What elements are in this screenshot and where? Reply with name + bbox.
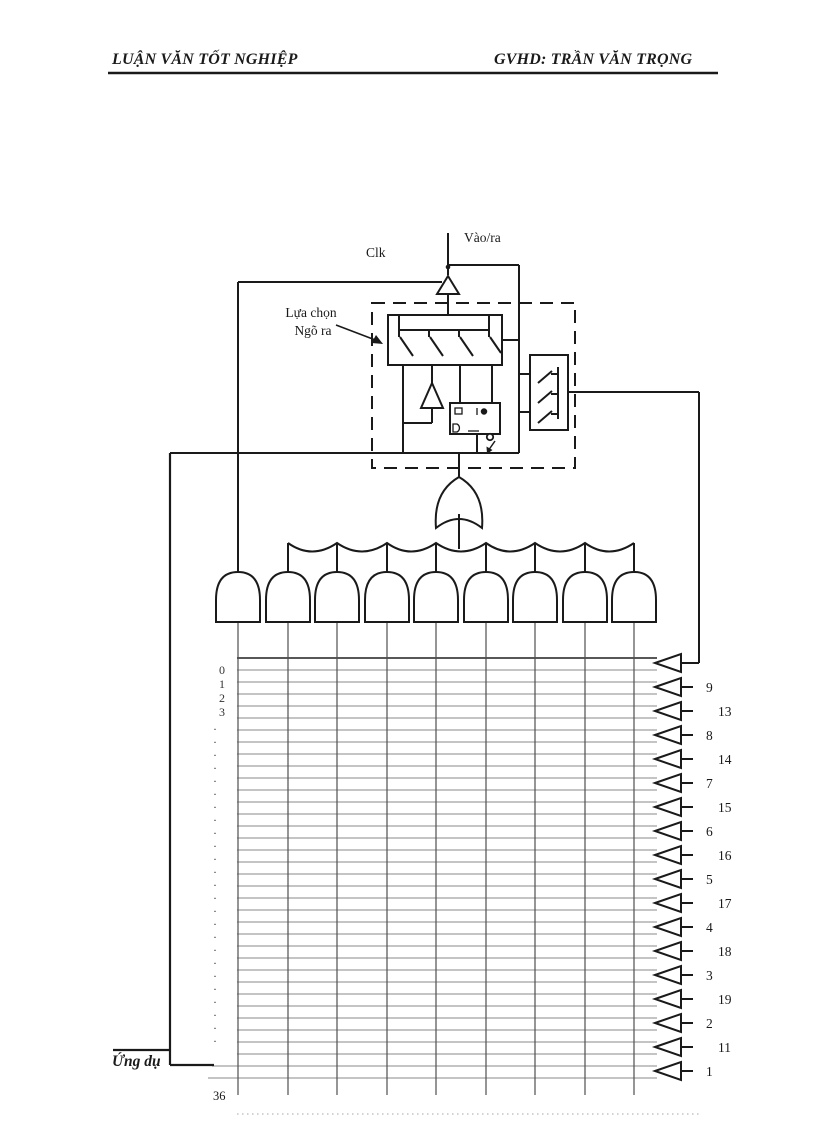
- led-triangle-icon: [655, 774, 681, 792]
- led-triangle-icon: [655, 870, 681, 888]
- diagram-texts: LUẬN VĂN TỐT NGHIỆP GVHD: TRẦN VĂN TRỌNG…: [111, 48, 692, 1103]
- pin-label: 5: [706, 872, 713, 887]
- and-gates: [216, 572, 656, 622]
- long-feedback-wire: [170, 453, 214, 1065]
- output-bundle-curve: [288, 543, 634, 552]
- led-triangle-icon: [655, 1062, 681, 1080]
- pin-label: 2: [706, 1016, 713, 1031]
- io-label: Vào/ra: [464, 230, 501, 245]
- flipflop-bubble: [487, 434, 493, 440]
- row-dot: .: [214, 1031, 217, 1045]
- led-triangle-icon: [655, 990, 681, 1008]
- row-dot: .: [214, 940, 217, 954]
- row-dot: .: [214, 849, 217, 863]
- pin-label: 9: [706, 680, 713, 695]
- row-dot: .: [214, 732, 217, 746]
- row-dot: .: [214, 836, 217, 850]
- row-dot: .: [214, 875, 217, 889]
- led-triangle-icon: [655, 942, 681, 960]
- thesis-header-left: LUẬN VĂN TỐT NGHIỆP: [111, 49, 298, 68]
- led-triangle-icon: [655, 654, 681, 672]
- and-gate-icon: [216, 572, 260, 622]
- pin-label: 15: [718, 800, 732, 815]
- row-dot: .: [214, 966, 217, 980]
- led-triangle-icon: [655, 1038, 681, 1056]
- and-gate-icon: [563, 572, 607, 622]
- pin-label: 4: [706, 920, 713, 935]
- junction-dot: [446, 265, 451, 270]
- output-select-label-line1: Lựa chọn: [285, 305, 336, 320]
- led-triangle-icon: [655, 750, 681, 768]
- led-triangle-icon: [655, 918, 681, 936]
- gate-output-stubs: [288, 543, 634, 572]
- switch-bank-box: [388, 315, 502, 365]
- pin-label: 14: [718, 752, 732, 767]
- pin-label: 7: [706, 776, 713, 791]
- row-dot: .: [214, 927, 217, 941]
- pin-label: 8: [706, 728, 713, 743]
- row-label: 1: [219, 677, 225, 691]
- demux-left-stubs: [519, 374, 530, 412]
- document-page: 0123......................... 9138147156…: [0, 0, 816, 1123]
- row-dot: .: [214, 914, 217, 928]
- page-number: 36: [213, 1089, 226, 1103]
- circuit-schematic: 0123......................... 9138147156…: [0, 0, 816, 1123]
- led-triangle-icon: [655, 822, 681, 840]
- pin-label: 19: [718, 992, 732, 1007]
- inner-buffer-icon: [421, 383, 443, 408]
- row-dot: .: [214, 862, 217, 876]
- row-label: 2: [219, 691, 225, 705]
- led-output-triangles: [655, 654, 693, 1080]
- pin-label: 3: [706, 968, 713, 983]
- matrix-rows: [208, 658, 657, 1078]
- pin-label: 1: [706, 1064, 713, 1079]
- row-label: 0: [219, 663, 225, 677]
- and-gate-icon: [464, 572, 508, 622]
- footer-text: Ứng dụ: [112, 1053, 161, 1070]
- pin-label: 16: [718, 848, 732, 863]
- and-gate-icon: [414, 572, 458, 622]
- row-dot: .: [214, 823, 217, 837]
- led-triangle-icon: [655, 702, 681, 720]
- and-gate-icon: [365, 572, 409, 622]
- and-gate-icon: [266, 572, 310, 622]
- row-dot: .: [214, 979, 217, 993]
- select-left-loop: [403, 408, 432, 423]
- led-triangle-icon: [655, 966, 681, 984]
- row-dot: .: [214, 758, 217, 772]
- clk-label: Clk: [366, 245, 386, 260]
- matrix-row-labels: 0123.........................: [214, 663, 226, 1045]
- pin-label: 18: [718, 944, 732, 959]
- row-dot: .: [214, 901, 217, 915]
- thesis-header-right: GVHD: TRẦN VĂN TRỌNG: [494, 48, 692, 68]
- row-dot: .: [214, 888, 217, 902]
- row-dot: .: [214, 1018, 217, 1032]
- pin-label: 13: [718, 704, 732, 719]
- output-select-label-line2: Ngõ ra: [294, 323, 331, 338]
- led-triangle-icon: [655, 894, 681, 912]
- led-triangle-icon: [655, 726, 681, 744]
- matrix-columns: [238, 622, 634, 1095]
- led-pin-labels: 9138147156165174183192111: [706, 680, 732, 1079]
- pin-label: 17: [718, 896, 732, 911]
- row-dot: .: [214, 784, 217, 798]
- led-triangle-icon: [655, 1014, 681, 1032]
- row-dot: .: [214, 953, 217, 967]
- led-triangle-icon: [655, 846, 681, 864]
- row-dot: .: [214, 719, 217, 733]
- row-dot: .: [214, 797, 217, 811]
- pin-label: 6: [706, 824, 713, 839]
- row-dot: .: [214, 992, 217, 1006]
- led-triangle-icon: [655, 678, 681, 696]
- and-gate-icon: [315, 572, 359, 622]
- row-dot: .: [214, 1005, 217, 1019]
- pin-label: 11: [718, 1040, 731, 1055]
- row-dot: .: [214, 745, 217, 759]
- row-dot: .: [214, 810, 217, 824]
- and-gate-icon: [612, 572, 656, 622]
- row-label: 3: [219, 705, 225, 719]
- and-gate-icon: [513, 572, 557, 622]
- row-dot: .: [214, 771, 217, 785]
- buffer-icon: [437, 276, 459, 294]
- led-triangle-icon: [655, 798, 681, 816]
